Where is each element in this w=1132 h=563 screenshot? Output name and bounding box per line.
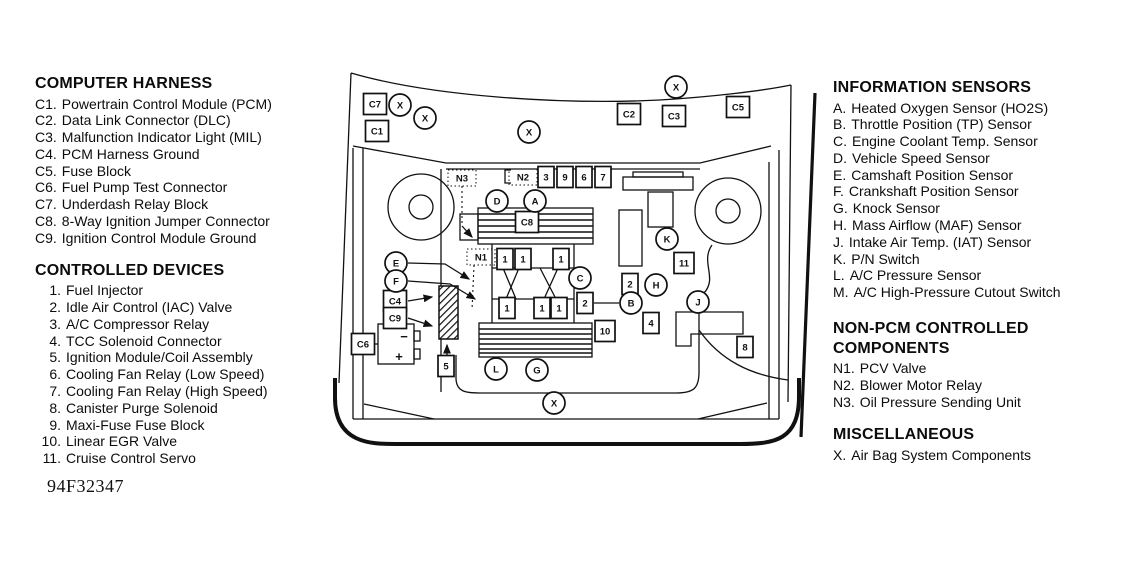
item-label: A/C Compressor Relay xyxy=(66,316,209,332)
svg-text:11: 11 xyxy=(679,258,690,269)
diagram-callouts: C7C1C2C3C5C8C4C9C63967111111221041185XXX… xyxy=(352,76,754,414)
item-label: PCV Valve xyxy=(860,360,927,376)
svg-text:C7: C7 xyxy=(369,99,381,110)
svg-text:N2: N2 xyxy=(517,172,529,183)
callout-b: B xyxy=(620,292,642,314)
item-number: 6. xyxy=(35,366,61,383)
item-label: Malfunction Indicator Light (MIL) xyxy=(62,129,262,145)
callout-g: G xyxy=(526,359,548,381)
item-number: C6. xyxy=(35,179,57,195)
item-number: 4. xyxy=(35,333,61,350)
callout-c2: C2 xyxy=(618,104,641,125)
item-label: Powertrain Control Module (PCM) xyxy=(62,96,272,112)
item-number: C. xyxy=(833,133,847,149)
item-label: Cooling Fan Relay (Low Speed) xyxy=(66,366,264,382)
svg-text:G: G xyxy=(533,365,540,376)
item-label: Fuel Injector xyxy=(66,282,143,298)
item-label: PCM Harness Ground xyxy=(62,146,200,162)
callout-1: 1 xyxy=(497,249,513,270)
item-label: Camshaft Position Sensor xyxy=(851,167,1013,183)
item-number: C7. xyxy=(35,196,57,212)
item-number: C3. xyxy=(35,129,57,145)
item-label: Cooling Fan Relay (High Speed) xyxy=(66,383,268,399)
callout-a: A xyxy=(524,190,546,212)
svg-text:C8: C8 xyxy=(521,217,533,228)
legend-item: 2.Idle Air Control (IAC) Valve xyxy=(35,299,335,316)
item-label: Heated Oxygen Sensor (HO2S) xyxy=(851,100,1048,116)
item-label: Throttle Position (TP) Sensor xyxy=(851,116,1032,132)
legend-item: F.Crankshaft Position Sensor xyxy=(833,183,1132,200)
callout-x: X xyxy=(543,392,565,414)
svg-text:C3: C3 xyxy=(668,111,680,122)
item-label: 8-Way Ignition Jumper Connector xyxy=(62,213,270,229)
callout-10: 10 xyxy=(595,321,615,342)
svg-text:C9: C9 xyxy=(389,313,401,324)
svg-text:1: 1 xyxy=(504,303,510,314)
item-number: 11. xyxy=(35,450,61,467)
item-number: E. xyxy=(833,167,846,183)
section-information-sensors: INFORMATION SENSORS A.Heated Oxygen Sens… xyxy=(833,80,1132,301)
item-label: Vehicle Speed Sensor xyxy=(852,150,990,166)
svg-text:10: 10 xyxy=(600,326,611,337)
item-number: 9. xyxy=(35,417,61,434)
item-number: 10. xyxy=(35,433,61,450)
item-number: F. xyxy=(833,183,844,199)
svg-text:C4: C4 xyxy=(389,296,402,307)
section-miscellaneous: MISCELLANEOUS X.Air Bag System Component… xyxy=(833,427,1132,463)
callout-1: 1 xyxy=(499,298,515,319)
svg-text:B: B xyxy=(628,298,635,309)
callout-c7: C7 xyxy=(364,94,387,115)
item-label: Fuse Block xyxy=(62,163,131,179)
item-number: 8. xyxy=(35,400,61,417)
right-fender xyxy=(801,93,815,437)
left-legend-column: COMPUTER HARNESS C1.Powertrain Control M… xyxy=(35,76,335,467)
svg-text:8: 8 xyxy=(742,342,747,353)
item-number: G. xyxy=(833,200,848,216)
svg-text:C: C xyxy=(577,273,584,284)
legend-item: E.Camshaft Position Sensor xyxy=(833,167,1132,184)
callout-3: 3 xyxy=(538,167,554,188)
section-computer-harness: COMPUTER HARNESS C1.Powertrain Control M… xyxy=(35,76,335,247)
bay-outline xyxy=(335,73,815,444)
item-number: C5. xyxy=(35,163,57,179)
item-number: N1. xyxy=(833,360,855,376)
miscellaneous-title: MISCELLANEOUS xyxy=(833,427,1132,444)
air-duct xyxy=(676,312,743,346)
item-label: TCC Solenoid Connector xyxy=(66,333,222,349)
svg-text:K: K xyxy=(664,234,671,245)
legend-item: 10.Linear EGR Valve xyxy=(35,433,335,450)
legend-item: C.Engine Coolant Temp. Sensor xyxy=(833,133,1132,150)
callout-n1: N1 xyxy=(467,249,495,265)
legend-item: 4.TCC Solenoid Connector xyxy=(35,333,335,350)
legend-item: C1.Powertrain Control Module (PCM) xyxy=(35,96,335,113)
svg-text:F: F xyxy=(393,276,399,287)
legend-item: C7.Underdash Relay Block xyxy=(35,196,335,213)
svg-text:N3: N3 xyxy=(456,173,468,184)
legend-item: N1.PCV Valve xyxy=(833,360,1132,377)
item-label: Oil Pressure Sending Unit xyxy=(860,394,1021,410)
legend-item: C3.Malfunction Indicator Light (MIL) xyxy=(35,129,335,146)
callout-c3: C3 xyxy=(663,106,686,127)
hood-edge xyxy=(351,73,791,101)
callout-c: C xyxy=(569,267,591,289)
controlled-devices-title: CONTROLLED DEVICES xyxy=(35,263,335,280)
svg-text:C5: C5 xyxy=(732,102,745,113)
controlled-devices-list: 1.Fuel Injector 2.Idle Air Control (IAC)… xyxy=(35,282,335,467)
svg-text:X: X xyxy=(551,398,558,409)
item-number: X. xyxy=(833,447,846,463)
svg-text:N1: N1 xyxy=(475,252,488,263)
battery: − + xyxy=(378,324,420,364)
item-number: C8. xyxy=(35,213,57,229)
legend-item: D.Vehicle Speed Sensor xyxy=(833,150,1132,167)
non-pcm-title-line2: COMPONENTS xyxy=(833,341,1132,358)
callout-n2: N2 xyxy=(509,169,537,185)
item-number: N3. xyxy=(833,394,855,410)
section-controlled-devices: CONTROLLED DEVICES 1.Fuel Injector 2.Idl… xyxy=(35,263,335,467)
item-label: Maxi-Fuse Fuse Block xyxy=(66,417,204,433)
item-number: H. xyxy=(833,217,847,233)
item-label: A/C High-Pressure Cutout Switch xyxy=(854,284,1061,300)
svg-text:9: 9 xyxy=(562,172,567,183)
callout-c6: C6 xyxy=(352,334,375,355)
svg-text:X: X xyxy=(397,100,404,111)
item-label: Ignition Control Module Ground xyxy=(62,230,257,246)
callout-1: 1 xyxy=(534,298,550,319)
item-label: Knock Sensor xyxy=(853,200,940,216)
item-number: C4. xyxy=(35,146,57,162)
callout-4: 4 xyxy=(643,313,659,334)
battery-minus: − xyxy=(400,329,408,344)
legend-item: N2.Blower Motor Relay xyxy=(833,377,1132,394)
item-label: P/N Switch xyxy=(851,251,919,267)
injector-web xyxy=(503,268,558,299)
legend-item: 3.A/C Compressor Relay xyxy=(35,316,335,333)
non-pcm-title-line1: NON-PCM CONTROLLED xyxy=(833,321,1132,338)
computer-harness-title: COMPUTER HARNESS xyxy=(35,76,335,93)
callout-7: 7 xyxy=(595,167,611,188)
svg-text:2: 2 xyxy=(582,298,587,309)
svg-text:1: 1 xyxy=(520,254,526,265)
svg-text:D: D xyxy=(494,196,501,207)
strut-tower-left xyxy=(388,174,454,240)
item-number: K. xyxy=(833,251,846,267)
item-number: A. xyxy=(833,100,846,116)
callout-8: 8 xyxy=(737,337,753,358)
callout-1: 1 xyxy=(553,249,569,270)
item-label: Air Bag System Components xyxy=(851,447,1031,463)
information-sensors-list: A.Heated Oxygen Sensor (HO2S) B.Throttle… xyxy=(833,100,1132,302)
legend-item: H.Mass Airflow (MAF) Sensor xyxy=(833,217,1132,234)
strut-tower-right xyxy=(695,178,761,244)
item-number: 5. xyxy=(35,349,61,366)
item-label: A/C Pressure Sensor xyxy=(850,267,982,283)
svg-text:1: 1 xyxy=(502,254,508,265)
legend-item: 6.Cooling Fan Relay (Low Speed) xyxy=(35,366,335,383)
item-label: Fuel Pump Test Connector xyxy=(62,179,228,195)
item-label: Crankshaft Position Sensor xyxy=(849,183,1019,199)
svg-text:X: X xyxy=(673,82,680,93)
svg-text:C6: C6 xyxy=(357,339,369,350)
section-non-pcm: NON-PCM CONTROLLED COMPONENTS N1.PCV Val… xyxy=(833,321,1132,410)
item-label: Mass Airflow (MAF) Sensor xyxy=(852,217,1022,233)
item-number: 3. xyxy=(35,316,61,333)
callout-x: X xyxy=(389,94,411,116)
item-label: Idle Air Control (IAC) Valve xyxy=(66,299,232,315)
figure-code: 94F32347 xyxy=(47,476,124,497)
callout-11: 11 xyxy=(674,253,694,274)
callout-f: F xyxy=(385,270,407,292)
item-number: B. xyxy=(833,116,846,132)
manual-page: − + C7C1C2C3C5C8C4C9C xyxy=(0,0,1132,563)
legend-item: 5.Ignition Module/Coil Assembly xyxy=(35,349,335,366)
item-label: Intake Air Temp. (IAT) Sensor xyxy=(849,234,1031,250)
item-number: D. xyxy=(833,150,847,166)
item-number: C1. xyxy=(35,96,57,112)
item-number: C9. xyxy=(35,230,57,246)
n2-bracket xyxy=(505,170,511,183)
item-label: Data Link Connector (DLC) xyxy=(62,112,231,128)
callout-x: X xyxy=(518,121,540,143)
legend-item: G.Knock Sensor xyxy=(833,200,1132,217)
svg-text:A: A xyxy=(532,196,539,207)
right-legend-column: INFORMATION SENSORS A.Heated Oxygen Sens… xyxy=(833,80,1132,464)
information-sensors-title: INFORMATION SENSORS xyxy=(833,80,1132,97)
legend-item: B.Throttle Position (TP) Sensor xyxy=(833,116,1132,133)
computer-harness-list: C1.Powertrain Control Module (PCM) C2.Da… xyxy=(35,96,335,247)
callout-n3: N3 xyxy=(448,170,476,186)
legend-item: C8.8-Way Ignition Jumper Connector xyxy=(35,213,335,230)
legend-item: C2.Data Link Connector (DLC) xyxy=(35,112,335,129)
callout-c5: C5 xyxy=(727,97,750,118)
non-pcm-list: N1.PCV Valve N2.Blower Motor Relay N3.Oi… xyxy=(833,360,1132,410)
legend-item: C4.PCM Harness Ground xyxy=(35,146,335,163)
item-number: N2. xyxy=(833,377,855,393)
svg-text:X: X xyxy=(422,113,429,124)
svg-text:H: H xyxy=(653,280,660,291)
callout-j: J xyxy=(687,291,709,313)
svg-text:L: L xyxy=(493,364,499,375)
legend-item: K.P/N Switch xyxy=(833,251,1132,268)
svg-text:1: 1 xyxy=(558,254,564,265)
svg-text:5: 5 xyxy=(443,361,449,372)
battery-plus: + xyxy=(395,349,403,364)
legend-item: 9.Maxi-Fuse Fuse Block xyxy=(35,417,335,434)
legend-item: A.Heated Oxygen Sensor (HO2S) xyxy=(833,100,1132,117)
item-number: M. xyxy=(833,284,849,300)
item-number: L. xyxy=(833,267,845,283)
valve-cover xyxy=(479,323,592,357)
item-number: 7. xyxy=(35,383,61,400)
svg-text:X: X xyxy=(526,127,533,138)
callout-c1: C1 xyxy=(366,121,389,142)
svg-text:C2: C2 xyxy=(623,109,635,120)
svg-text:2: 2 xyxy=(627,279,632,290)
legend-item: 8.Canister Purge Solenoid xyxy=(35,400,335,417)
svg-text:E: E xyxy=(393,258,399,269)
callout-c9: C9 xyxy=(384,308,407,329)
callout-5: 5 xyxy=(438,356,454,377)
item-number: C2. xyxy=(35,112,57,128)
legend-item: C9.Ignition Control Module Ground xyxy=(35,230,335,247)
legend-item: N3.Oil Pressure Sending Unit xyxy=(833,394,1132,411)
callout-2: 2 xyxy=(577,293,593,314)
callout-h: H xyxy=(645,274,667,296)
item-label: Blower Motor Relay xyxy=(860,377,982,393)
svg-text:C1: C1 xyxy=(371,126,384,137)
item-label: Engine Coolant Temp. Sensor xyxy=(852,133,1038,149)
item-number: 2. xyxy=(35,299,61,316)
svg-text:7: 7 xyxy=(600,172,605,183)
item-number: J. xyxy=(833,234,844,250)
legend-item: C5.Fuse Block xyxy=(35,163,335,180)
front-bumper xyxy=(335,378,799,444)
callout-1: 1 xyxy=(551,298,567,319)
svg-text:1: 1 xyxy=(539,303,545,314)
legend-item: 1.Fuel Injector xyxy=(35,282,335,299)
callout-c8: C8 xyxy=(516,212,539,233)
callout-1: 1 xyxy=(515,249,531,270)
miscellaneous-list: X.Air Bag System Components xyxy=(833,447,1132,464)
item-label: Linear EGR Valve xyxy=(66,433,177,449)
callout-d: D xyxy=(486,190,508,212)
callout-9: 9 xyxy=(557,167,573,188)
ignition-module xyxy=(439,286,458,339)
legend-item: M.A/C High-Pressure Cutout Switch xyxy=(833,284,1132,301)
legend-item: J.Intake Air Temp. (IAT) Sensor xyxy=(833,234,1132,251)
legend-item: X.Air Bag System Components xyxy=(833,447,1132,464)
callout-x: X xyxy=(665,76,687,98)
callout-l: L xyxy=(485,358,507,380)
svg-text:4: 4 xyxy=(648,318,654,329)
svg-text:6: 6 xyxy=(581,172,586,183)
svg-text:1: 1 xyxy=(556,303,562,314)
callout-x: X xyxy=(414,107,436,129)
legend-item: 11.Cruise Control Servo xyxy=(35,450,335,467)
item-label: Ignition Module/Coil Assembly xyxy=(66,349,253,365)
item-label: Cruise Control Servo xyxy=(66,450,196,466)
callout-6: 6 xyxy=(576,167,592,188)
callout-k: K xyxy=(656,228,678,250)
svg-text:3: 3 xyxy=(543,172,548,183)
item-label: Canister Purge Solenoid xyxy=(66,400,218,416)
svg-text:J: J xyxy=(695,297,700,308)
legend-item: L.A/C Pressure Sensor xyxy=(833,267,1132,284)
legend-item: 7.Cooling Fan Relay (High Speed) xyxy=(35,383,335,400)
legend-item: C6.Fuel Pump Test Connector xyxy=(35,179,335,196)
item-label: Underdash Relay Block xyxy=(62,196,208,212)
item-number: 1. xyxy=(35,282,61,299)
